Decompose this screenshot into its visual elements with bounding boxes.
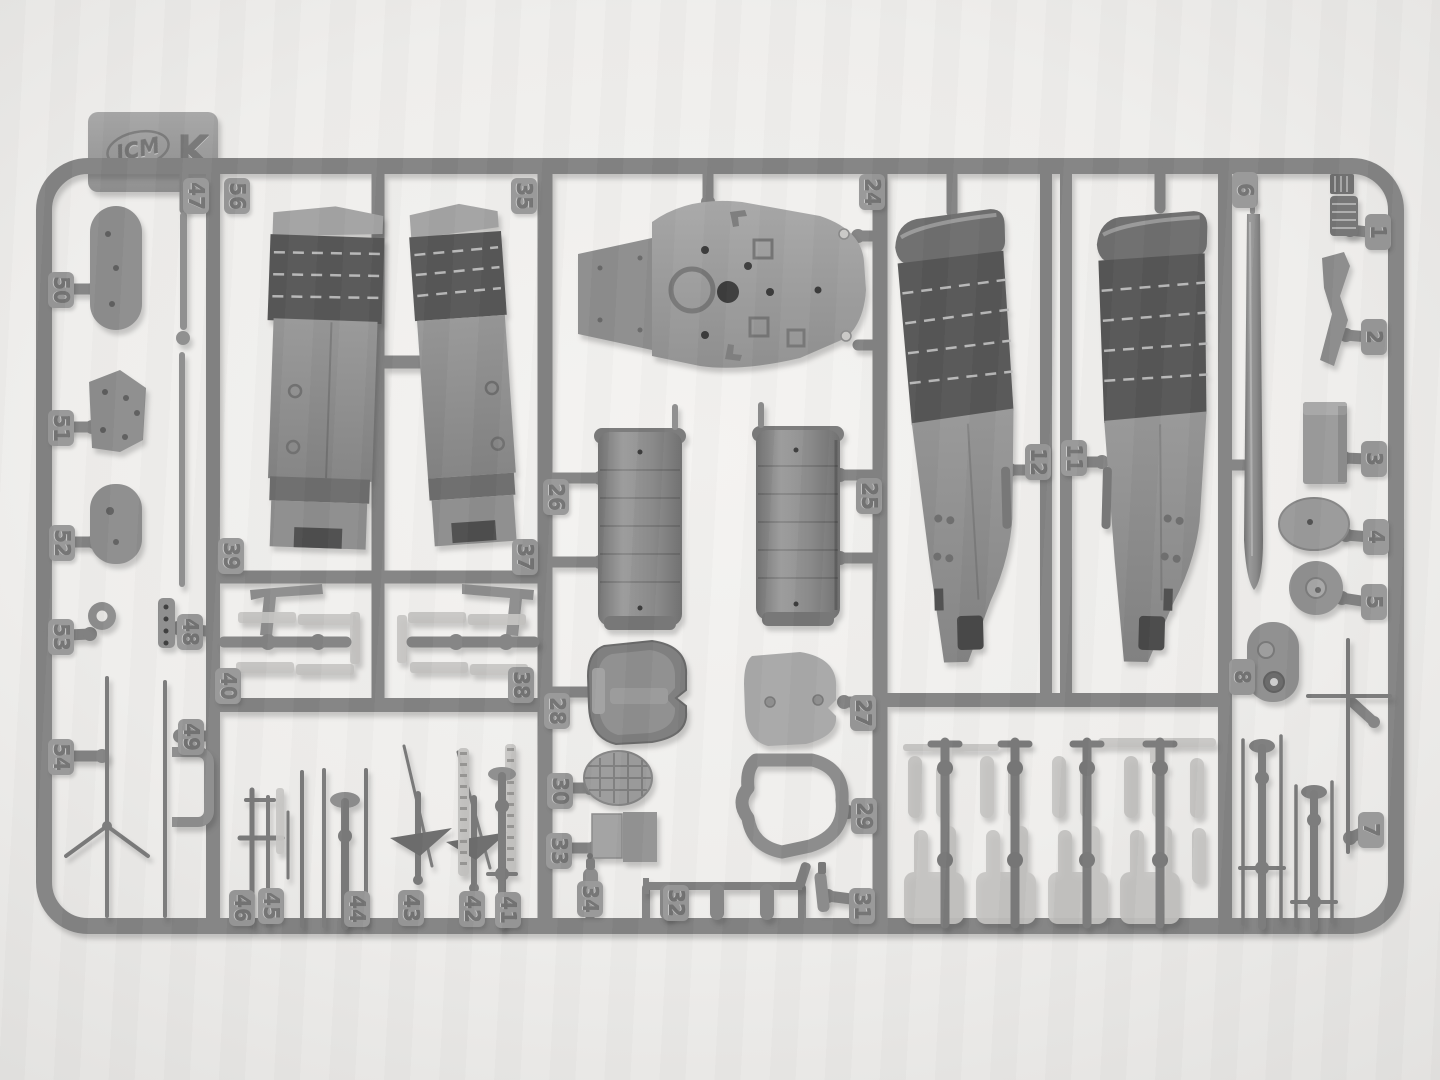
part-53-eyelet <box>88 602 116 630</box>
part-number-tag-48: 48 <box>177 614 203 650</box>
part-number-tag-50: 50 <box>48 272 74 308</box>
part-number-text: 26 <box>544 483 568 511</box>
part-number-tag-32: 32 <box>663 885 689 921</box>
part-number-tag-6: 6 <box>1232 172 1258 208</box>
part-number-text: 48 <box>178 618 202 646</box>
part-number-tag-46: 46 <box>229 890 255 926</box>
part-number-tag-54: 54 <box>48 739 74 775</box>
part-number-tag-39: 39 <box>218 538 244 574</box>
part-number-text: 56 <box>225 182 249 210</box>
sprue-scene: ICM K <box>0 0 1440 1080</box>
sprue-parts <box>66 174 1390 928</box>
part-number-text: 11 <box>1062 444 1086 472</box>
part-11-fender <box>1086 209 1212 664</box>
part-number-text: 33 <box>547 837 571 865</box>
part-number-tag-8: 8 <box>1229 659 1255 695</box>
part-number-text: 52 <box>50 529 74 557</box>
part-number-text: 28 <box>545 697 569 725</box>
part-number-tag-42: 42 <box>459 891 485 927</box>
part-number-text: 7 <box>1359 823 1383 837</box>
part-5-disc <box>1289 561 1343 615</box>
part-number-text: 29 <box>852 802 876 830</box>
part-number-text: 6 <box>1233 183 1257 197</box>
part-number-text: 4 <box>1364 530 1388 544</box>
part-number-tag-27: 27 <box>850 695 876 731</box>
part-number-text: 43 <box>399 894 423 922</box>
part-number-text: 49 <box>179 723 203 751</box>
part-37-bracket <box>462 584 534 636</box>
part-1-muffler <box>1330 196 1358 236</box>
part-2-brace <box>1320 252 1350 366</box>
part-26-cylinder <box>594 404 686 630</box>
part-number-text: 51 <box>49 414 73 442</box>
part-number-tag-31: 31 <box>849 888 875 924</box>
part-50-plate <box>90 206 142 330</box>
part-number-tag-37: 37 <box>512 539 538 575</box>
part-6-gun-barrel <box>1244 196 1263 590</box>
part-number-text: 30 <box>548 777 572 805</box>
part-number-text: 38 <box>509 671 533 699</box>
part-35-fender <box>407 201 522 547</box>
part-number-text: 45 <box>259 892 283 920</box>
part-number-text: 27 <box>851 699 875 727</box>
part-number-text: 42 <box>460 895 484 923</box>
antenna-tripod-part <box>66 678 148 916</box>
rod-cluster-b <box>1292 782 1336 928</box>
part-33-plates <box>592 812 657 862</box>
gate-bullet-27 <box>837 695 851 709</box>
part-number-tag-43: 43 <box>398 890 424 926</box>
part-number-tag-3: 3 <box>1361 441 1387 477</box>
part-number-text: 41 <box>496 896 520 924</box>
part-number-tag-40: 40 <box>215 668 241 704</box>
part-number-text: 50 <box>49 276 73 304</box>
part-number-tag-2: 2 <box>1361 319 1387 355</box>
part-number-tag-30: 30 <box>547 773 573 809</box>
part-number-tag-28: 28 <box>544 693 570 729</box>
part-number-tag-24: 24 <box>859 174 885 210</box>
part-30-grille <box>584 751 652 805</box>
part-number-text: 46 <box>230 894 254 922</box>
part-number-tag-44: 44 <box>344 891 370 927</box>
part-number-tag-51: 51 <box>48 410 74 446</box>
part-number-text: 35 <box>512 182 536 210</box>
part-number-tag-5: 5 <box>1361 584 1387 620</box>
part-56-fender <box>260 204 386 550</box>
part-number-text: 5 <box>1362 595 1386 609</box>
gate-bullet-53 <box>83 627 97 641</box>
part-52-plate <box>90 484 142 564</box>
part-number-text: 31 <box>850 892 874 920</box>
part-number-tag-4: 4 <box>1363 519 1389 555</box>
strip-cluster-40 <box>224 612 360 675</box>
part-number-text: 25 <box>857 482 881 510</box>
part-number-tag-29: 29 <box>851 798 877 834</box>
flat-parts-cluster <box>903 738 1216 924</box>
rod-cluster-a <box>1240 736 1284 926</box>
part-number-tag-12: 12 <box>1025 444 1051 480</box>
part-3-box <box>1303 402 1347 484</box>
part-number-text: 39 <box>219 542 243 570</box>
part-4-oval-plate <box>1279 498 1349 550</box>
part-number-text: 8 <box>1230 670 1254 684</box>
part-number-text: 47 <box>184 182 208 210</box>
part-48-strip <box>158 598 175 648</box>
part-number-tag-52: 52 <box>49 525 75 561</box>
part-number-tag-49: 49 <box>178 719 204 755</box>
part-31-peg <box>814 862 830 913</box>
part-number-text: 32 <box>664 889 688 917</box>
part-number-tag-1: 1 <box>1365 214 1391 250</box>
ribbed-corner-part <box>1330 174 1354 194</box>
part-number-tag-38: 38 <box>508 667 534 703</box>
part-51-plate <box>89 370 146 452</box>
part-47-rod <box>176 212 190 587</box>
part-number-text: 2 <box>1362 330 1386 344</box>
part-number-text: 40 <box>216 672 240 700</box>
part-number-text: 37 <box>513 543 537 571</box>
part-number-tag-47: 47 <box>183 178 209 214</box>
part-number-text: 53 <box>49 623 73 651</box>
part-number-text: 34 <box>578 885 602 913</box>
part-number-tag-35: 35 <box>511 178 537 214</box>
part-number-tag-34: 34 <box>577 881 603 917</box>
part-25-cylinder <box>752 402 844 626</box>
part-number-text: 54 <box>49 743 73 771</box>
part-39-bracket <box>250 584 323 636</box>
part-27-shield <box>744 652 836 746</box>
part-number-text: 24 <box>860 178 884 206</box>
sprue-photo: ICM K <box>0 0 1440 1080</box>
gate-bullet-11 <box>1095 455 1109 469</box>
part-28-shield <box>588 641 686 744</box>
part-number-tag-45: 45 <box>258 888 284 924</box>
part-number-tag-53: 53 <box>48 619 74 655</box>
part-49-handle <box>172 752 209 822</box>
part-24-hull-plate <box>578 201 866 368</box>
part-number-tag-25: 25 <box>856 478 882 514</box>
part-number-tag-41: 41 <box>495 892 521 928</box>
part-12-fender <box>894 209 1020 664</box>
part-29-frame-ring <box>742 760 842 852</box>
part-number-text: 1 <box>1366 225 1390 239</box>
part-number-tag-11: 11 <box>1061 440 1087 476</box>
part-number-text: 44 <box>345 895 369 923</box>
part-number-text: 12 <box>1026 448 1050 476</box>
part-number-tag-7: 7 <box>1358 812 1384 848</box>
strip-cluster-38 <box>397 612 534 675</box>
part-number-tag-33: 33 <box>546 833 572 869</box>
part-number-tag-26: 26 <box>543 479 569 515</box>
part-number-tag-56: 56 <box>224 178 250 214</box>
part-number-text: 3 <box>1362 452 1386 466</box>
